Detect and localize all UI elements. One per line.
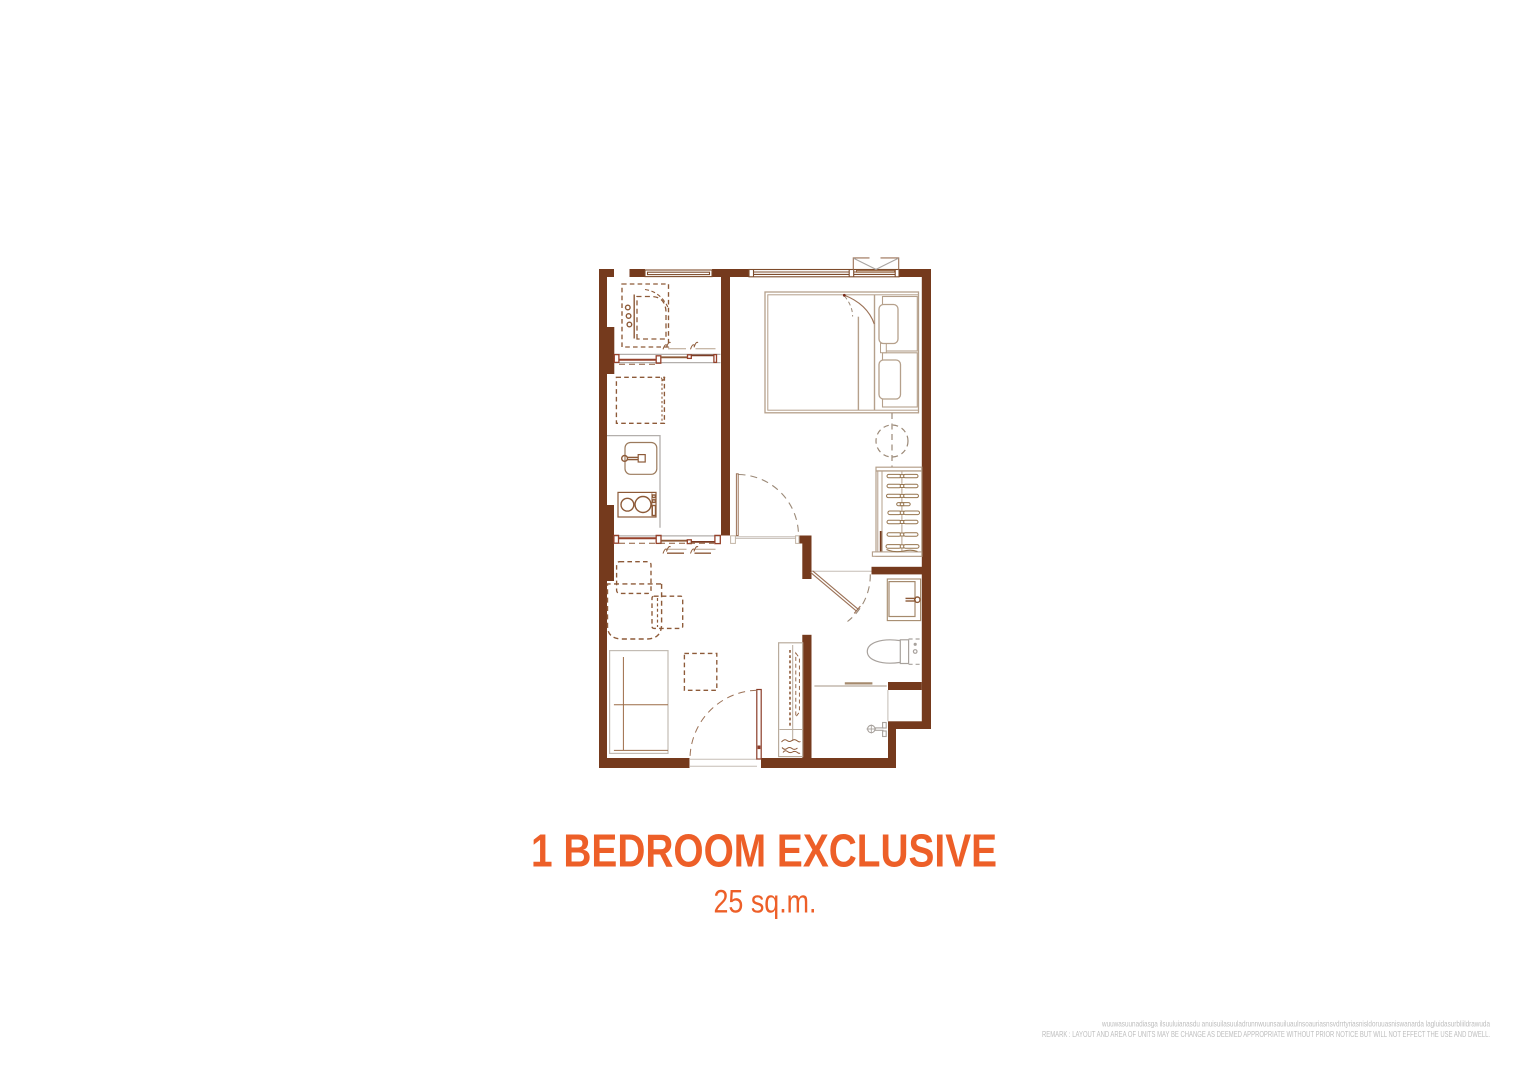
svg-text:25 sq.m.: 25 sq.m. bbox=[714, 884, 817, 920]
svg-text:REMARK : LAYOUT AND AREA OF UN: REMARK : LAYOUT AND AREA OF UNITS MAY BE… bbox=[1042, 1029, 1490, 1039]
svg-text:1 BEDROOM EXCLUSIVE: 1 BEDROOM EXCLUSIVE bbox=[531, 825, 997, 877]
svg-text:wuuwasuunadiasga ilsuuluianasd: wuuwasuunadiasga ilsuuluianasdu anuisuil… bbox=[1101, 1019, 1490, 1029]
